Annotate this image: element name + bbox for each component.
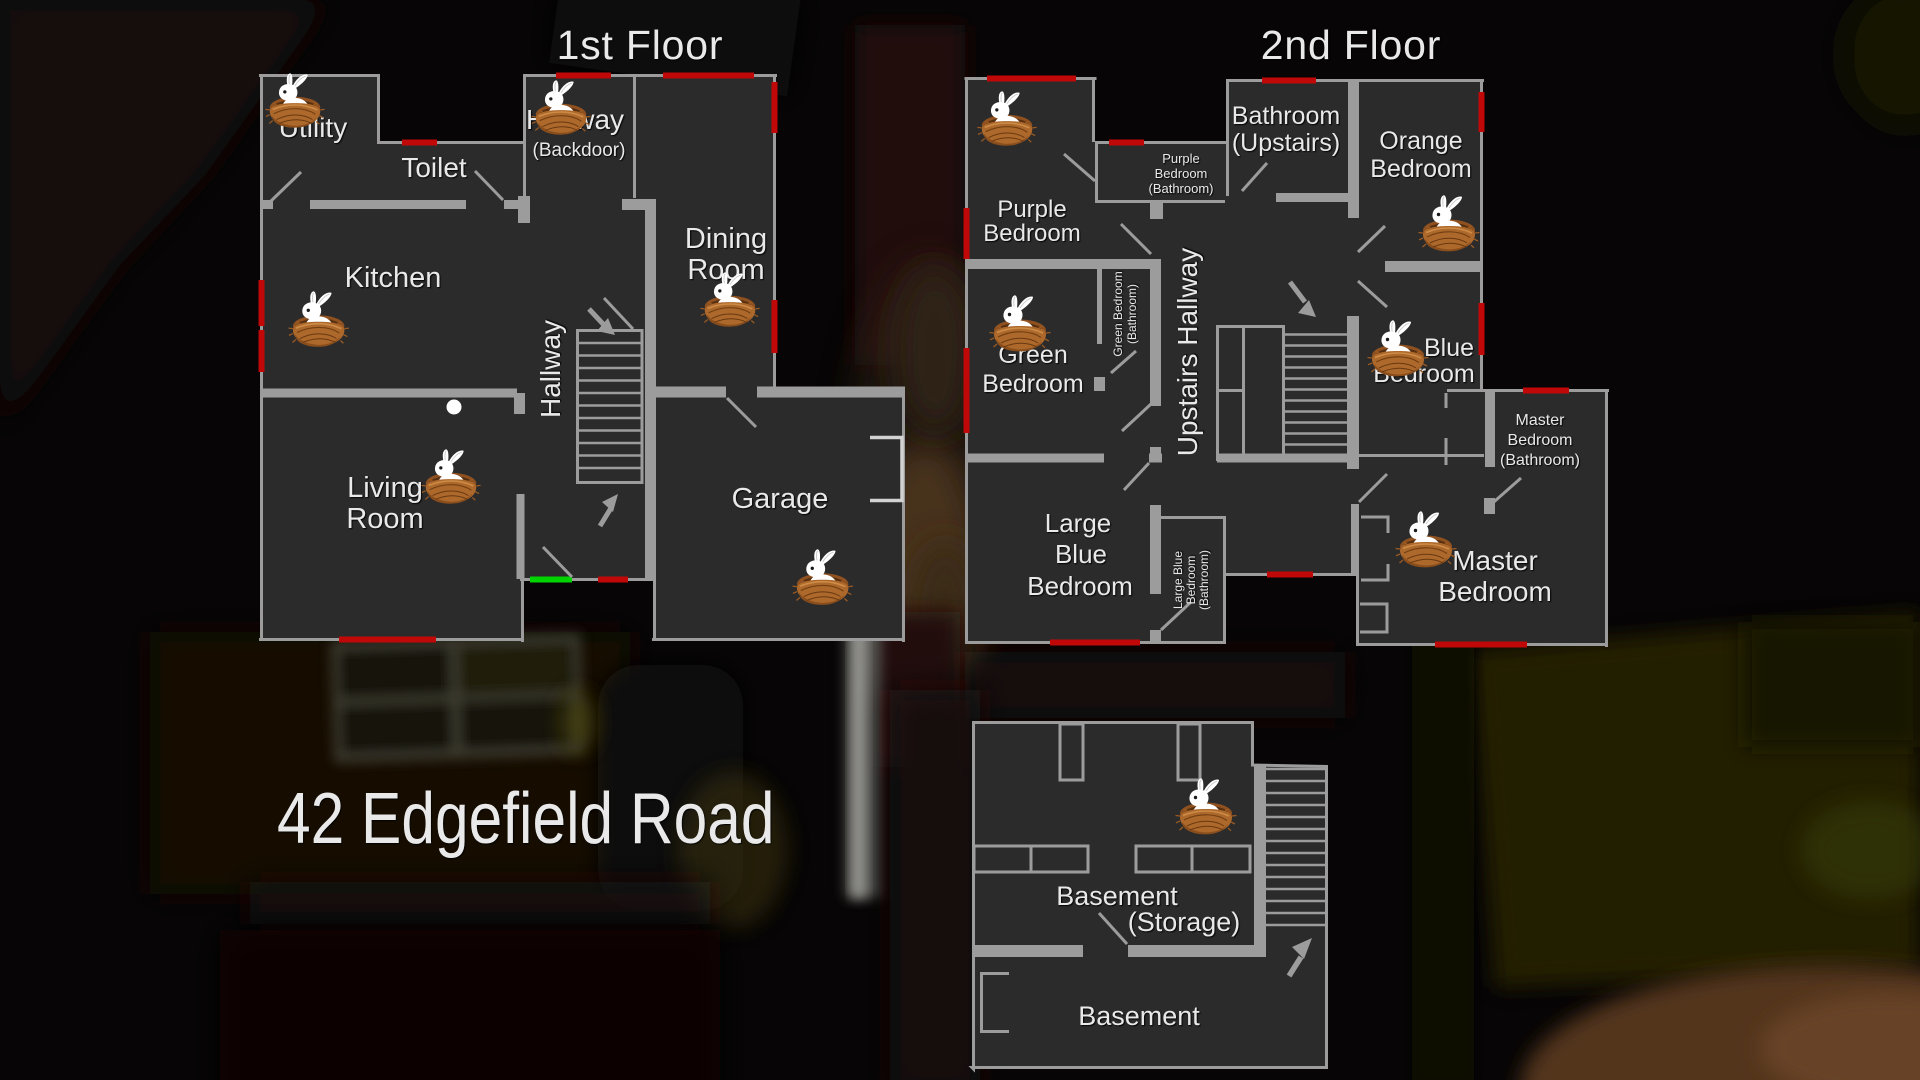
svg-text:Room: Room	[346, 503, 423, 535]
svg-text:Large Blue: Large Blue	[1171, 551, 1185, 609]
svg-text:Master: Master	[1452, 545, 1538, 576]
svg-text:Upstairs Hallway: Upstairs Hallway	[1172, 248, 1203, 457]
svg-text:Large: Large	[1045, 508, 1112, 538]
svg-text:Dining: Dining	[685, 223, 767, 255]
svg-text:Bedroom: Bedroom	[1370, 155, 1471, 183]
svg-text:Master: Master	[1516, 412, 1566, 429]
svg-text:Purple: Purple	[997, 196, 1066, 223]
svg-text:2nd Floor: 2nd Floor	[1261, 22, 1441, 68]
svg-text:(Bathroom): (Bathroom)	[1500, 452, 1580, 469]
svg-text:Bathroom: Bathroom	[1232, 102, 1340, 130]
svg-text:Bedroom: Bedroom	[1438, 576, 1552, 607]
svg-text:Living: Living	[347, 472, 423, 504]
svg-text:Blue: Blue	[1424, 334, 1474, 362]
svg-text:Bedroom: Bedroom	[982, 370, 1083, 398]
svg-text:Bedroom: Bedroom	[1184, 556, 1198, 605]
svg-text:42 Edgefield Road: 42 Edgefield Road	[277, 779, 775, 859]
svg-text:Blue: Blue	[1055, 539, 1107, 569]
svg-text:Bedroom: Bedroom	[1027, 571, 1133, 601]
svg-text:Toilet: Toilet	[401, 152, 467, 183]
svg-text:(Upstairs): (Upstairs)	[1232, 129, 1340, 157]
svg-text:(Storage): (Storage)	[1128, 907, 1241, 937]
svg-text:Bedroom: Bedroom	[983, 220, 1080, 247]
svg-text:Bedroom: Bedroom	[1155, 166, 1208, 181]
svg-text:(Bathroom): (Bathroom)	[1197, 550, 1211, 610]
svg-text:Kitchen: Kitchen	[345, 262, 442, 294]
svg-text:Orange: Orange	[1379, 127, 1462, 155]
svg-text:Green Bedroom: Green Bedroom	[1111, 271, 1125, 356]
svg-text:Basement: Basement	[1078, 1001, 1200, 1031]
svg-text:Garage: Garage	[732, 483, 829, 515]
svg-text:Bedroom: Bedroom	[1508, 432, 1573, 449]
svg-text:Purple: Purple	[1162, 151, 1200, 166]
svg-text:1st Floor: 1st Floor	[557, 22, 724, 68]
svg-text:(Backdoor): (Backdoor)	[533, 140, 626, 161]
svg-text:(Bathroom): (Bathroom)	[1125, 284, 1139, 344]
svg-text:(Bathroom): (Bathroom)	[1148, 181, 1213, 196]
svg-text:Hallway: Hallway	[535, 320, 566, 418]
